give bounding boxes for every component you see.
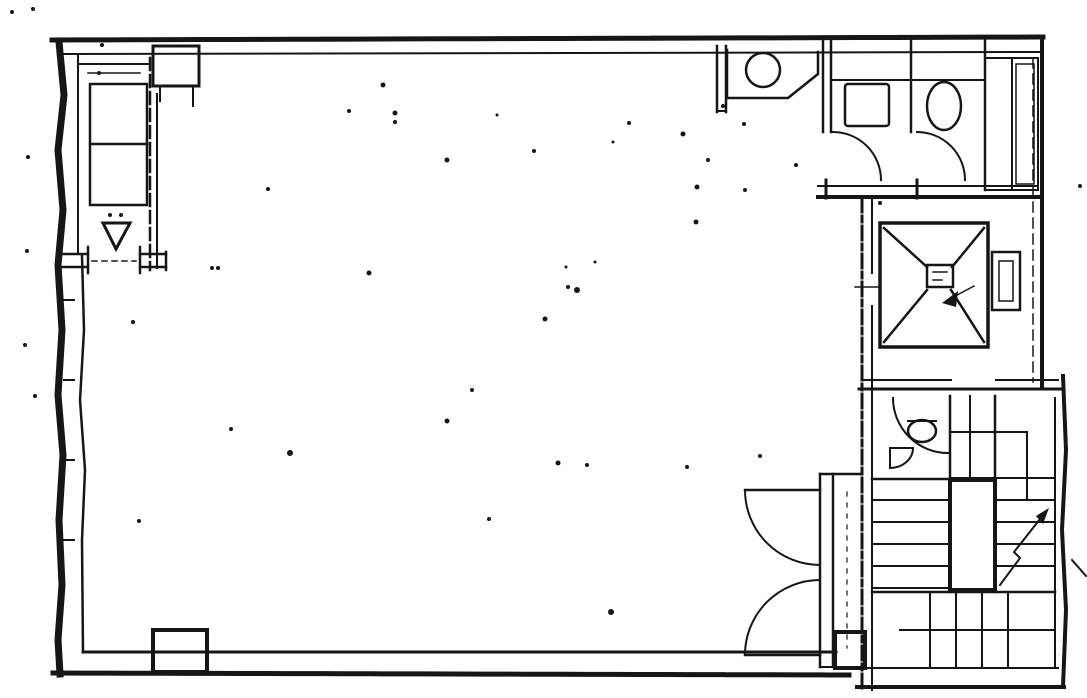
scan-speck xyxy=(608,609,614,615)
scan-speck xyxy=(393,111,398,116)
marker-dot-2 xyxy=(119,213,123,217)
duct-shaft-inner xyxy=(1016,64,1034,184)
scan-speck xyxy=(445,158,450,163)
scan-speck xyxy=(131,320,135,324)
scan-speck xyxy=(31,7,35,11)
scan-speck xyxy=(100,43,104,47)
scan-speck xyxy=(25,249,29,253)
elevator-piston-box xyxy=(927,265,953,287)
left-wall-inner-lower xyxy=(80,256,85,652)
scan-speck xyxy=(496,114,499,117)
scan-speck xyxy=(574,287,580,293)
scan-speck xyxy=(97,71,101,75)
scan-speck xyxy=(685,465,689,469)
elevator-diagonal-2 xyxy=(952,228,984,267)
scan-speck xyxy=(26,155,30,159)
top-wall-outer xyxy=(52,37,1043,40)
scan-speck xyxy=(695,185,700,190)
scan-speck xyxy=(742,122,746,126)
scan-speck xyxy=(758,454,762,458)
counterweight-inner xyxy=(999,261,1013,301)
top-wall-inner xyxy=(62,52,1039,54)
scan-speck xyxy=(137,519,141,523)
scan-speck xyxy=(216,266,220,270)
scan-speck xyxy=(594,261,597,264)
elevator-diagonal-3 xyxy=(884,290,927,342)
washroom-basin xyxy=(845,84,889,126)
scan-speck xyxy=(33,394,37,398)
scan-speck xyxy=(694,220,699,225)
corner-basin xyxy=(890,448,913,468)
toilet-bowl xyxy=(927,82,961,130)
triangle-marker xyxy=(103,223,130,249)
scan-speck xyxy=(565,266,568,269)
scan-speck xyxy=(612,141,615,144)
scan-speck xyxy=(210,266,214,270)
scan-speck xyxy=(721,104,725,108)
stair-east-wall-outer xyxy=(1062,376,1066,687)
scan-speck xyxy=(229,427,233,431)
scan-speck xyxy=(585,463,589,467)
scan-speck xyxy=(287,450,293,456)
scan-speck xyxy=(743,188,747,192)
corner-closet xyxy=(153,46,199,86)
left-wall-outer xyxy=(58,42,64,674)
floorplan-sheet: Scanned architectural floor plan xyxy=(0,0,1087,698)
marker-dot-1 xyxy=(108,213,112,217)
scan-speck xyxy=(543,317,548,322)
scan-speck xyxy=(566,285,570,289)
scan-speck xyxy=(706,158,710,162)
scan-speck xyxy=(794,163,798,167)
scan-speck xyxy=(470,388,474,392)
scan-speck xyxy=(10,10,14,14)
vanity-sink xyxy=(746,53,780,87)
stair-stray-mark xyxy=(1072,560,1086,576)
floor-plan-svg xyxy=(0,0,1087,698)
washroom-door-b-arc xyxy=(917,132,965,180)
urinal-bowl xyxy=(908,420,936,442)
urinal-door-arc xyxy=(893,398,948,453)
scan-speck xyxy=(393,120,397,124)
scan-speck xyxy=(367,271,372,276)
stair-break-line xyxy=(1000,519,1040,585)
scan-speck xyxy=(23,343,27,347)
scan-speck xyxy=(347,109,351,113)
scan-speck xyxy=(381,83,386,88)
scan-speck xyxy=(266,187,270,191)
scan-speck xyxy=(627,121,631,125)
scan-speck xyxy=(1078,184,1082,188)
scan-speck xyxy=(532,149,536,153)
scan-speck xyxy=(445,419,450,424)
washroom-door-a-arc xyxy=(833,132,881,180)
elevator-diagonal-1 xyxy=(884,228,927,267)
entrance-door-bottom-arc xyxy=(745,580,820,655)
stair-well xyxy=(950,480,995,590)
scan-speck xyxy=(487,517,491,521)
scan-speck xyxy=(556,461,561,466)
scan-speck xyxy=(878,201,882,205)
elevator-arrowhead xyxy=(942,291,958,307)
scan-speck xyxy=(681,132,686,137)
entrance-door-top-arc xyxy=(745,490,820,565)
